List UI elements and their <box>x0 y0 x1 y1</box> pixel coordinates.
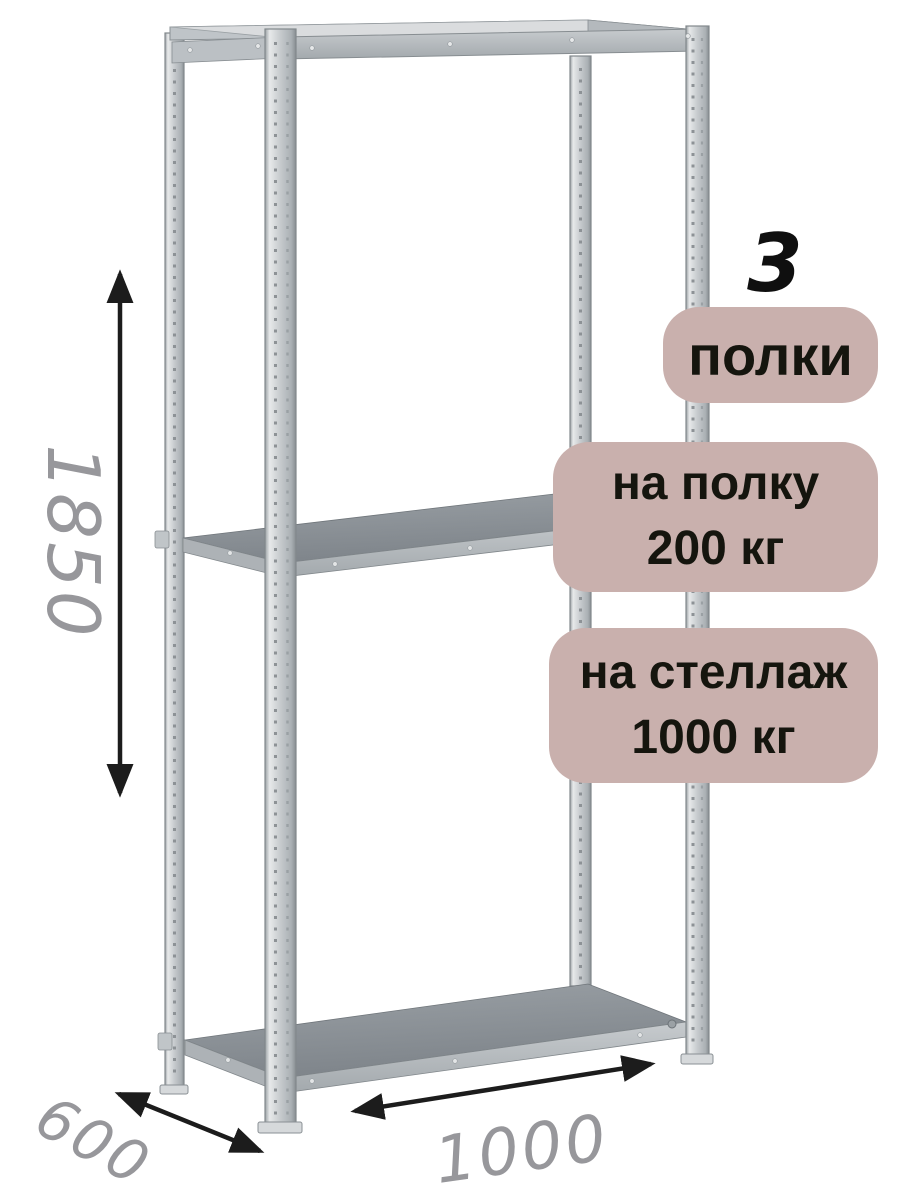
total-load-line1: на стеллаж <box>549 641 878 706</box>
total-load-badge: на стеллаж 1000 кг <box>549 628 878 783</box>
per-shelf-load-line2: 200 кг <box>553 517 878 582</box>
post-back-left <box>165 33 184 1087</box>
shelf-count-value: 3 <box>723 224 827 304</box>
per-shelf-load-badge: на полку 200 кг <box>553 442 878 592</box>
total-load-line2: 1000 кг <box>549 706 878 771</box>
product-image: 1850 600 1000 3 полки на полку 200 кг на… <box>0 0 900 1200</box>
bottom-shelf <box>158 984 686 1093</box>
shelf-count-label: полки <box>663 323 878 388</box>
height-dimension-label: 1850 <box>35 392 109 692</box>
per-shelf-load-line1: на полку <box>553 452 878 517</box>
post-front-left <box>265 29 296 1124</box>
shelf-count-badge: полки <box>663 307 878 403</box>
shelving-rack-illustration <box>0 0 900 1200</box>
